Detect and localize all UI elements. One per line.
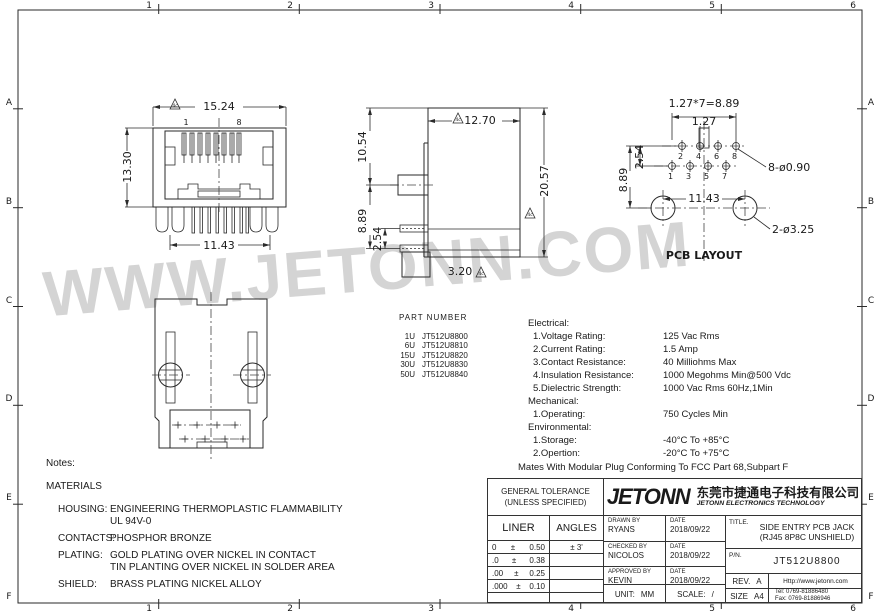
zone-row-label: E: [6, 493, 12, 503]
spec-row: 4.Insulation Resistance:1000 Megohms Min…: [518, 369, 863, 382]
dim-side-right: 20.57: [538, 165, 551, 197]
tolerance-row: .0±0.38: [488, 554, 550, 567]
tolerance-col-liner: LINER: [488, 516, 550, 541]
tolerance-angle: [550, 580, 604, 593]
part-number-row: 6UJT512U8810: [393, 341, 468, 351]
part-number-title: PART NUMBER: [399, 313, 468, 323]
zone-row-label: C: [868, 296, 874, 306]
title-cell: TITLE. SIDE ENTRY PCB JACK(RJ45 8P8C UNS…: [726, 516, 862, 549]
notes-row: SHIELD: BRASS PLATING NICKEL ALLOY: [46, 579, 476, 591]
drawing-title-line1: SIDE ENTRY PCB JACK: [752, 522, 862, 532]
spec-row: 2.Opertion:-20°C To +75°C: [518, 447, 863, 460]
company-name-en: JETONN ELECTRONICS TECHNOLOGY: [697, 500, 860, 508]
dim-pcb-left-b: 2.54: [633, 145, 646, 170]
side-view-drawing: 4c 12.70 10.54 8.89 2.54 20.5: [352, 93, 567, 293]
part-number-row: 50UJT512U8840: [393, 370, 468, 380]
approved-by-cell: APPROVED BYKEVIN: [604, 567, 666, 585]
dim-front-width: 15.24: [203, 100, 235, 113]
notes-row: PLATING: GOLD PLATING OVER NICKEL IN CON…: [46, 550, 476, 574]
pcb-pin-label: 2: [678, 152, 683, 161]
pcb-pin-label: 6: [714, 152, 719, 161]
zone-col-label: 3: [428, 1, 434, 11]
drawn-date-cell: DATE2018/09/22: [666, 516, 726, 542]
spec-section-heading: Electrical:: [518, 317, 863, 330]
inspection-flag: 4c: [455, 117, 461, 123]
pcb-pin-label: 8: [732, 152, 737, 161]
zone-row-label: F: [6, 592, 11, 602]
notes-subtitle: MATERIALS: [46, 481, 476, 493]
dim-side-left-a: 8.89: [356, 209, 369, 234]
drawing-part-number: JT512U8800: [752, 556, 862, 567]
spec-section-heading: Mechanical:: [518, 395, 863, 408]
zone-col-label: 6: [850, 604, 856, 613]
zone-row-label: F: [868, 592, 873, 602]
zone-col-label: 5: [709, 604, 715, 613]
zone-row-label: E: [868, 493, 874, 503]
approved-date-cell: DATE2018/09/22: [666, 567, 726, 585]
tolerance-row: .00±0.25: [488, 567, 550, 580]
tolerance-col-angles: ANGLES: [550, 516, 604, 541]
zone-col-label: 4: [568, 1, 574, 11]
zone-col-label: 5: [709, 1, 715, 11]
checked-by-cell: CHECKED BYNICOLOS: [604, 542, 666, 567]
inspection-flag: 4c: [172, 103, 178, 109]
zone-row-label: D: [6, 394, 13, 404]
part-number-cell: P/N. JT512U8800: [726, 549, 862, 574]
front-view-drawing: 15.24 4c 1 8 13.30 11.43: [100, 93, 295, 265]
tolerance-row: 0±0.50: [488, 541, 550, 554]
dim-side-top: 12.70: [464, 114, 496, 127]
company-header: JETONN 东莞市捷通电子科技有限公司 JETONN ELECTRONICS …: [604, 479, 862, 516]
spec-row: 2.Current Rating:1.5 Amp: [518, 343, 863, 356]
drawn-by-cell: DRAWN BYRYANS: [604, 516, 666, 542]
fax: Fax: 0769-81886946: [775, 596, 830, 603]
notes-row: HOUSING: ENGINEERING THERMOPLASTIC FLAMM…: [46, 504, 476, 528]
dim-pcb-holes: 11.43: [688, 192, 720, 205]
website-cell: Http://www.jetonn.com: [769, 574, 862, 589]
zone-col-label: 3: [428, 604, 434, 613]
drawing-title-line2: (RJ45 8P8C UNSHIELD): [752, 532, 862, 542]
tolerance-row: .000±0.10: [488, 580, 550, 593]
callout-big-holes: 2-ø3.25: [772, 223, 814, 236]
pcb-pin-label: 5: [704, 172, 709, 181]
notes-block: Notes: MATERIALS HOUSING: ENGINEERING TH…: [46, 458, 476, 596]
part-number-row: 30UJT512U8830: [393, 360, 468, 370]
pcb-layout-caption: PCB LAYOUT: [666, 249, 743, 262]
dim-pcb-pitch-total: 1.27*7=8.89: [669, 97, 740, 110]
zone-row-label: D: [868, 394, 875, 404]
tolerance-angle: [550, 567, 604, 580]
callout-small-holes: 8-ø0.90: [768, 161, 810, 174]
spec-section-heading: Environmental:: [518, 421, 863, 434]
zone-col-label: 1: [146, 604, 152, 613]
bottom-view-drawing: [138, 288, 323, 466]
drawing-sheet: WWW.JETONN.COM 1 2 3 4 5 6 1 2 3 4: [0, 0, 880, 613]
checked-date-cell: DATE2018/09/22: [666, 542, 726, 567]
scale-cell: SCALE:/: [666, 585, 726, 603]
zone-col-label: 6: [850, 1, 856, 11]
telfax-cell: Tel: 0769-81886480 Fax: 0769-81886946: [769, 589, 862, 603]
spec-row: 5.Dielectric Strength:1000 Vac Rms 60Hz,…: [518, 382, 863, 395]
pin-label-1: 1: [183, 118, 188, 127]
zone-row-label: C: [6, 296, 12, 306]
pcb-pin-label: 1: [668, 172, 673, 181]
part-number-row: 15UJT512U8820: [393, 351, 468, 361]
spec-row: 1.Storage:-40°C To +85°C: [518, 434, 863, 447]
zone-col-label: 2: [287, 604, 293, 613]
zone-row-label: A: [6, 98, 13, 108]
pcb-pin-label: 4: [696, 152, 701, 161]
pcb-layout-drawing: 2 4 6 8 1 3 5 7 1.27*7=8.89 1.27 8.89 2.…: [618, 93, 862, 275]
part-number-list: PART NUMBER 1UJT512U8800 6UJT512U8810 15…: [393, 313, 468, 379]
part-number-row: 1UJT512U8800: [393, 332, 468, 342]
dim-front-bottom: 11.43: [203, 239, 235, 252]
dim-side-left-top: 10.54: [356, 131, 369, 163]
zone-col-label: 1: [146, 1, 152, 11]
spec-footer-note: Mates With Modular Plug Conforming To FC…: [518, 461, 863, 474]
dim-side-foot: 3.20: [448, 265, 473, 278]
company-name-cn: 东莞市捷通电子科技有限公司: [697, 486, 860, 500]
inspection-flag: 4c: [527, 212, 533, 218]
dim-pcb-pitch: 1.27: [692, 115, 717, 128]
zone-col-label: 4: [568, 604, 574, 613]
unit-cell: UNIT:MM: [604, 585, 666, 603]
dim-pcb-left-a: 8.89: [617, 168, 630, 193]
jetonn-logo: JETONN: [607, 484, 690, 510]
spec-row: 1.Voltage Rating:125 Vac Rms: [518, 330, 863, 343]
rev-cell: REV.A: [726, 574, 769, 589]
zone-row-label: A: [868, 98, 875, 108]
zone-row-label: B: [6, 197, 12, 207]
zone-col-label: 2: [287, 1, 293, 11]
inspection-flag: 4c: [478, 271, 484, 277]
dim-side-left-b: 2.54: [371, 227, 384, 252]
title-block: GENERAL TOLERANCE (UNLESS SPECIFIED) JET…: [487, 478, 862, 603]
tolerance-angle: [550, 554, 604, 567]
size-cell: SIZEA4: [726, 589, 769, 603]
dim-front-height: 13.30: [121, 151, 134, 183]
pcb-pin-label: 3: [686, 172, 691, 181]
zone-row-label: B: [868, 197, 874, 207]
specifications: Electrical: 1.Voltage Rating:125 Vac Rms…: [518, 317, 863, 474]
tolerance-angle: ± 3': [550, 541, 604, 554]
notes-title: Notes:: [46, 458, 476, 470]
tolerance-header: GENERAL TOLERANCE (UNLESS SPECIFIED): [488, 479, 604, 516]
spec-row: 1.Operating:750 Cycles Min: [518, 408, 863, 421]
pcb-pin-label: 7: [722, 172, 727, 181]
spec-row: 3.Contact Resistance:40 Milliohms Max: [518, 356, 863, 369]
notes-row: CONTACTS: PHOSPHOR BRONZE: [46, 533, 476, 545]
pin-label-8: 8: [236, 118, 241, 127]
tel: Tel: 0769-81886480: [775, 589, 828, 596]
